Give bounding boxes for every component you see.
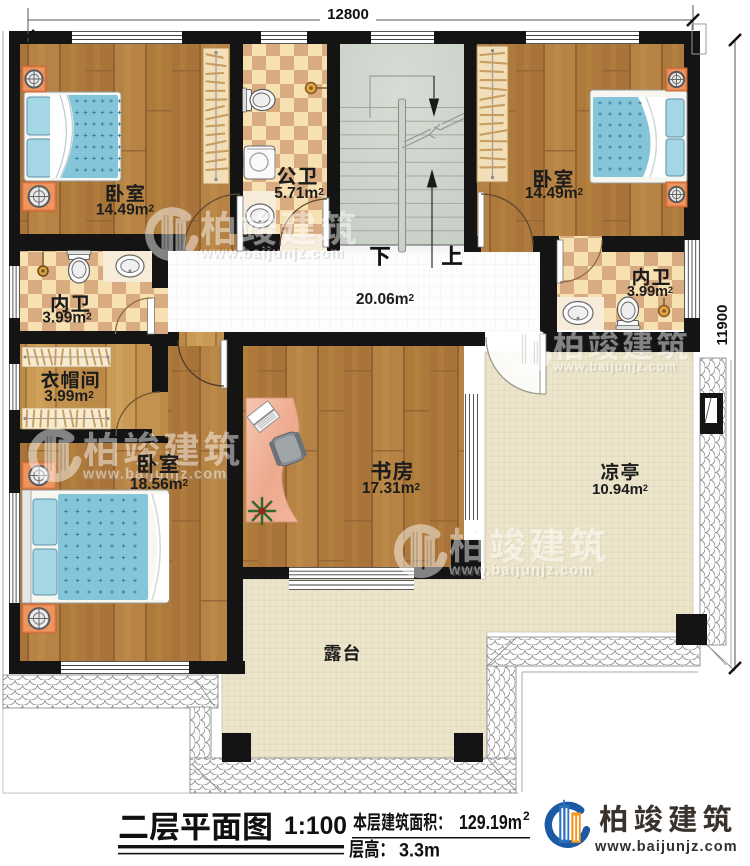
svg-text:10.94m2: 10.94m2 — [592, 481, 648, 498]
svg-text:2: 2 — [523, 809, 530, 823]
svg-text:www.baijunjz.com: www.baijunjz.com — [594, 839, 738, 855]
svg-text:3.99m2: 3.99m2 — [42, 310, 92, 327]
svg-text:12800: 12800 — [327, 6, 369, 23]
svg-text:3.99m2: 3.99m2 — [627, 284, 673, 300]
svg-text:14.49m2: 14.49m2 — [96, 202, 155, 219]
svg-text:5.71m2: 5.71m2 — [274, 185, 324, 202]
svg-text:3.99m2: 3.99m2 — [44, 388, 94, 405]
svg-text:129.19m: 129.19m — [459, 812, 522, 834]
svg-text:14.49m2: 14.49m2 — [525, 185, 584, 202]
svg-text:www.baijunjz.com: www.baijunjz.com — [552, 360, 677, 374]
svg-text:3.3m: 3.3m — [399, 841, 440, 862]
svg-text:18.56m2: 18.56m2 — [130, 476, 189, 493]
svg-text:20.06m2: 20.06m2 — [356, 291, 415, 308]
svg-text:www.baijunjz.com: www.baijunjz.com — [199, 246, 344, 262]
svg-text:17.31m2: 17.31m2 — [362, 480, 421, 497]
svg-text:1:100: 1:100 — [284, 812, 347, 840]
svg-text:11900: 11900 — [714, 305, 731, 346]
svg-text:www.baijunjz.com: www.baijunjz.com — [448, 563, 593, 579]
